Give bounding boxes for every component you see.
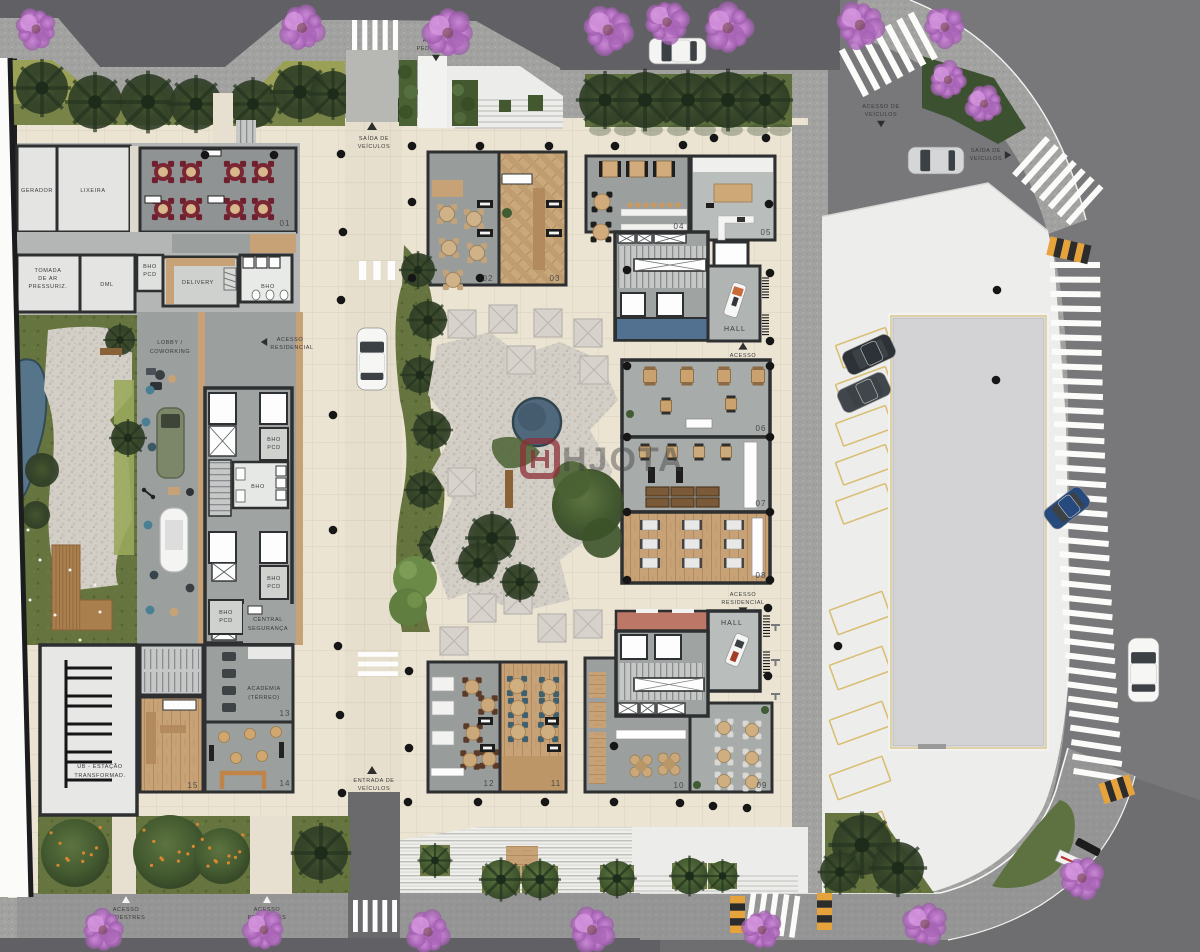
svg-text:RESIDENCIAL: RESIDENCIAL — [270, 345, 313, 351]
svg-text:06: 06 — [756, 424, 767, 433]
svg-text:CENTRAL: CENTRAL — [253, 617, 283, 623]
svg-text:BHO: BHO — [143, 264, 157, 270]
svg-text:ACESSO: ACESSO — [730, 353, 757, 359]
svg-text:LOBBY /: LOBBY / — [157, 340, 183, 346]
svg-text:ACESSO DE: ACESSO DE — [862, 104, 900, 110]
svg-text:TRANSFORMAD.: TRANSFORMAD. — [74, 773, 125, 779]
svg-text:07: 07 — [756, 499, 767, 508]
svg-text:UB - ESTAÇÃO: UB - ESTAÇÃO — [77, 763, 123, 770]
svg-text:(TÉRREO): (TÉRREO) — [248, 694, 279, 701]
svg-text:03: 03 — [550, 274, 561, 283]
svg-text:BHO: BHO — [251, 484, 265, 490]
svg-text:BHO: BHO — [261, 284, 275, 290]
svg-text:PCD: PCD — [267, 445, 280, 451]
svg-text:SAÍDA DE: SAÍDA DE — [971, 147, 1001, 154]
svg-text:VEÍCULOS: VEÍCULOS — [970, 155, 1003, 162]
svg-text:COWORKING: COWORKING — [150, 349, 191, 355]
svg-text:DML: DML — [100, 282, 113, 288]
svg-text:ENTRADA DE: ENTRADA DE — [353, 778, 394, 784]
svg-text:14: 14 — [280, 779, 291, 788]
svg-text:PCD: PCD — [219, 618, 232, 624]
svg-text:DE AR: DE AR — [38, 276, 58, 282]
svg-text:VEÍCULOS: VEÍCULOS — [358, 143, 391, 150]
svg-text:12: 12 — [484, 779, 495, 788]
svg-text:PRESSURIZ.: PRESSURIZ. — [28, 284, 67, 290]
svg-text:GERADOR: GERADOR — [21, 188, 53, 194]
svg-text:BHO: BHO — [267, 437, 281, 443]
svg-text:SEGURANÇA: SEGURANÇA — [248, 626, 288, 632]
svg-text:01: 01 — [280, 219, 291, 228]
svg-text:15: 15 — [188, 781, 199, 790]
svg-text:VEÍCULOS: VEÍCULOS — [865, 111, 898, 118]
svg-text:LIXEIRA: LIXEIRA — [80, 188, 105, 194]
svg-text:VEÍCULOS: VEÍCULOS — [358, 785, 391, 792]
svg-text:HALL: HALL — [724, 326, 746, 333]
svg-text:05: 05 — [761, 228, 772, 237]
svg-text:09: 09 — [757, 781, 768, 790]
svg-text:04: 04 — [674, 222, 685, 231]
svg-text:PCD: PCD — [267, 584, 280, 590]
svg-text:TOMADA: TOMADA — [34, 268, 61, 274]
svg-text:11: 11 — [551, 779, 561, 788]
svg-text:08: 08 — [756, 571, 767, 580]
svg-text:BHO: BHO — [267, 576, 281, 582]
svg-text:DELIVERY: DELIVERY — [182, 280, 214, 286]
svg-text:ACESSO: ACESSO — [113, 907, 140, 913]
svg-text:ACADEMIA: ACADEMIA — [247, 686, 281, 692]
svg-text:ACESSO: ACESSO — [277, 337, 304, 343]
svg-text:ACESSO: ACESSO — [730, 592, 757, 598]
svg-text:10: 10 — [674, 781, 685, 790]
svg-text:RESIDENCIAL: RESIDENCIAL — [721, 600, 764, 606]
svg-text:SAÍDA DE: SAÍDA DE — [359, 135, 389, 142]
svg-text:BHO: BHO — [219, 610, 233, 616]
svg-text:PCD: PCD — [143, 272, 156, 278]
svg-text:HALL: HALL — [721, 620, 743, 627]
svg-text:13: 13 — [280, 709, 291, 718]
svg-text:HJOTA: HJOTA — [562, 441, 685, 479]
